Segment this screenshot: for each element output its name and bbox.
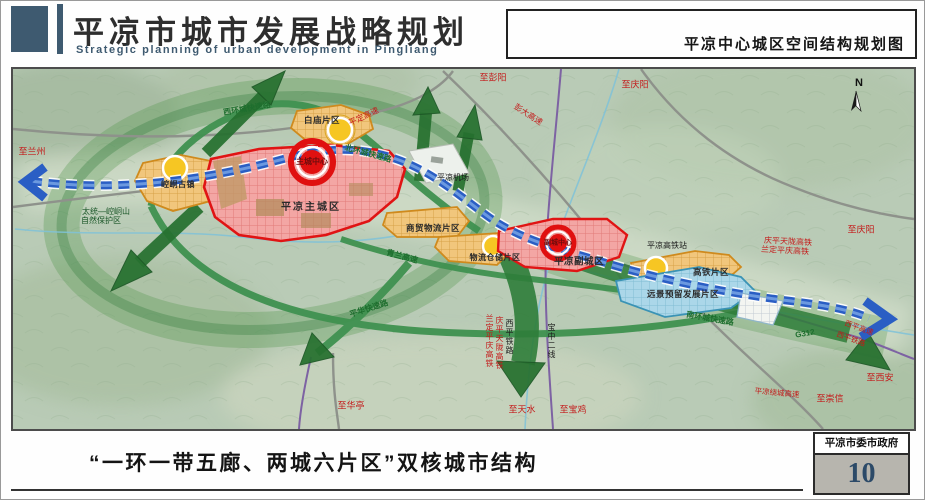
railway-label-ldpq-vertical: 兰定平庆高铁 [485, 314, 493, 368]
map-title: 平凉中心城区空间结构规划图 [684, 33, 905, 54]
planning-map: 至兰州 西环城快速路 白庙片区 平定高速 至彭阳 彭大高速 至庆阳 北环城快速路… [11, 67, 916, 431]
nature-reserve-label-line2: 自然保护区 [81, 217, 121, 225]
railway-label-xiping-vertical: 西平铁路 [505, 319, 513, 355]
zone-label-kongtong: 崆峒古镇 [161, 181, 195, 189]
page-number-block: 平凉市委市政府 10 [813, 432, 910, 495]
direction-label-qingyang-top: 至庆阳 [621, 81, 648, 90]
direction-label-qingyang-right: 至庆阳 [847, 226, 874, 235]
station-label-airport: 平凉机场 [437, 174, 469, 182]
zone-label-sub-city: 平凉副城区 [554, 257, 604, 267]
header-bar [57, 4, 63, 54]
station-label-hsr: 平凉高铁站 [647, 242, 687, 250]
slide-page: 平凉市城市发展战略规划 Strategic planning of urban … [0, 0, 925, 500]
zone-label-baimiao: 白庙片区 [304, 116, 340, 125]
railway-label-baozhong2: 宝中二线 [547, 323, 555, 359]
page-number: 10 [815, 455, 908, 493]
direction-label-pengyang: 至彭阳 [479, 74, 506, 83]
org-label: 平凉市委市政府 [815, 434, 908, 455]
zone-label-logistics-storage: 物流仓储片区 [470, 254, 521, 262]
direction-label-huating: 至华亭 [337, 402, 364, 411]
nature-reserve-label-line1: 太统—崆峒山 [82, 208, 130, 216]
direction-label-lanzhou: 至兰州 [18, 148, 45, 157]
subtitle-en: Strategic planning of urban development … [76, 44, 439, 56]
zone-label-hsr: 高铁片区 [693, 268, 729, 277]
compass-north-label: N [855, 77, 863, 89]
zone-label-trade-logistics: 商贸物流片区 [406, 224, 460, 233]
direction-label-tianshui: 至天水 [508, 406, 535, 415]
header-square [11, 6, 48, 52]
map-title-box: 平凉中心城区空间结构规划图 [506, 9, 917, 59]
direction-label-baoji: 至宝鸡 [559, 406, 586, 415]
railway-label-qpt-vertical: 庆平天陇高铁 [495, 316, 503, 370]
direction-label-chongxin: 至崇信 [816, 395, 843, 404]
zone-label-sub-core: 副城中心 [544, 240, 572, 247]
structure-caption: “一环一带五廊、两城六片区”双核城市结构 [89, 447, 538, 477]
zone-label-reserve: 远景预留发展片区 [647, 290, 719, 299]
footer-divider [11, 489, 803, 491]
zone-label-main-core: 主城中心 [296, 158, 328, 166]
direction-label-xian: 至西安 [866, 374, 893, 383]
zone-label-main-city: 平凉主城区 [281, 203, 341, 213]
